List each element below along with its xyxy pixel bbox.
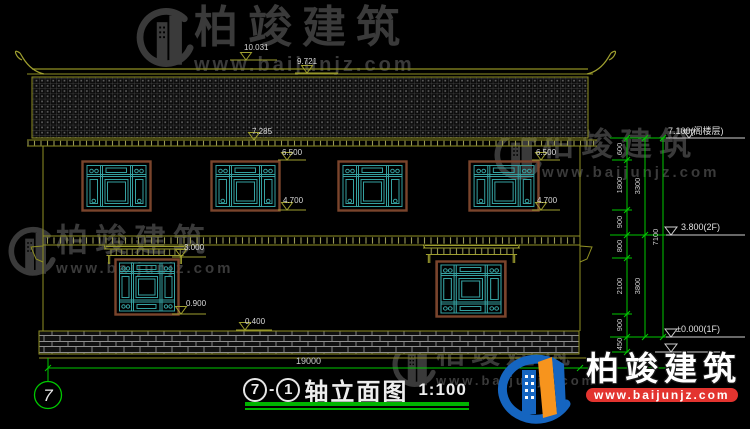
- level-win2f-sill-mid: 4.700: [283, 196, 304, 205]
- dim-600: 600: [615, 143, 624, 156]
- level-attic: 7.100(阁楼层): [668, 125, 724, 136]
- level-floor1: ±0.000(1F): [676, 324, 720, 334]
- dim-1800: 1800: [615, 177, 624, 194]
- level-eave: 7.285: [252, 127, 273, 136]
- window-2f-2: [212, 162, 280, 211]
- window-1f-right: [437, 262, 506, 317]
- window-2f-4: [470, 162, 539, 211]
- grid-bubble-from: 7: [243, 378, 267, 402]
- window-2f-1: [83, 162, 151, 211]
- roof-tiles: [32, 77, 588, 138]
- belt-bracket-right: [580, 246, 592, 262]
- dim-7100: 7100: [651, 229, 660, 246]
- window-1f-left: [116, 260, 179, 315]
- dim-900a: 900: [615, 216, 624, 229]
- title-underline-thin: [245, 408, 469, 410]
- title-underline: [245, 402, 469, 406]
- level-win2f-sill-right: 4.700: [537, 196, 558, 205]
- dim-450: 450: [615, 338, 624, 351]
- dim-3800: 3800: [633, 278, 642, 295]
- dim-900b: 900: [615, 319, 624, 332]
- window-2f-3: [339, 162, 407, 211]
- level-win1f-sill: 0.900: [186, 299, 207, 308]
- brand-logo-icon: [488, 352, 584, 426]
- level-win2f-head-mid: 6.500: [282, 148, 303, 157]
- axis-bubble-label: 7: [43, 386, 53, 405]
- brand-logo: 柏竣建筑 www.baijunjz.com: [488, 352, 742, 426]
- dim-3300: 3300: [633, 178, 642, 195]
- grid-to-label: 1: [284, 381, 292, 398]
- dim-800: 800: [615, 240, 624, 253]
- belt-bracket-left: [31, 246, 43, 262]
- level-ridge: 9.721: [297, 57, 318, 66]
- plinth: [39, 331, 579, 354]
- canopy-1f-right: [423, 245, 520, 264]
- title-scale: 1:100: [418, 380, 466, 400]
- level-win2f-head-right: 6.500: [536, 148, 557, 157]
- right-eave-finial: [587, 51, 616, 74]
- level-win1f-head: 3.000: [184, 243, 205, 252]
- dim-2100: 2100: [615, 278, 624, 295]
- dim-19000: 19000: [296, 356, 321, 366]
- level-plinth-top: 0.400: [245, 317, 266, 326]
- dim-chain-right: 600 1800 900 800 2100 900 450 3300 3800 …: [610, 135, 666, 355]
- title-separator: -: [269, 381, 274, 399]
- axis-bubble-7: 7: [35, 382, 62, 409]
- level-floor2: 3.800(2F): [681, 222, 720, 232]
- cad-canvas: 柏竣建筑 www.baijunjz.com 柏竣建筑 www.baijunjz.…: [0, 0, 750, 429]
- brand-site: www.baijunjz.com: [586, 388, 738, 402]
- left-eave-finial: [16, 51, 45, 74]
- grid-from-label: 7: [251, 381, 259, 398]
- level-ridge-top: 10.031: [244, 43, 269, 52]
- brand-name: 柏竣建筑: [586, 352, 742, 385]
- grid-bubble-to: 1: [276, 378, 300, 402]
